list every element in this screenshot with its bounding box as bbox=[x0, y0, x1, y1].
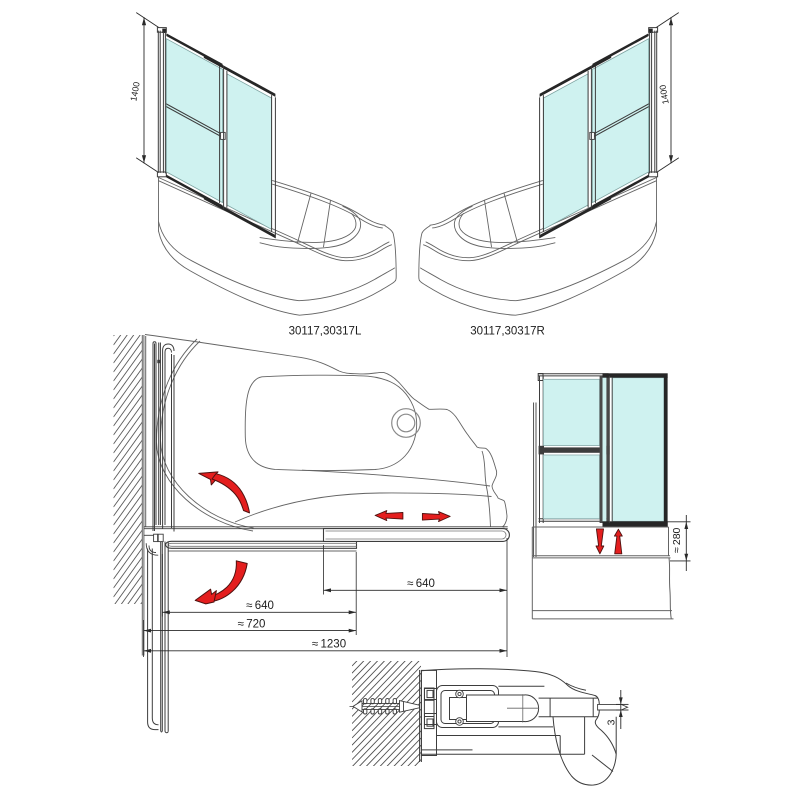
svg-text:30117,30317R: 30117,30317R bbox=[470, 326, 545, 338]
svg-text:≈ 640: ≈ 640 bbox=[407, 578, 435, 590]
svg-text:≈ 720: ≈ 720 bbox=[238, 619, 266, 631]
svg-text:≈ 280: ≈ 280 bbox=[671, 527, 683, 553]
svg-text:≈ 1230: ≈ 1230 bbox=[312, 639, 346, 651]
svg-text:3: 3 bbox=[606, 719, 618, 725]
svg-text:≈ 640: ≈ 640 bbox=[246, 600, 274, 612]
svg-text:30117,30317L: 30117,30317L bbox=[289, 326, 362, 338]
